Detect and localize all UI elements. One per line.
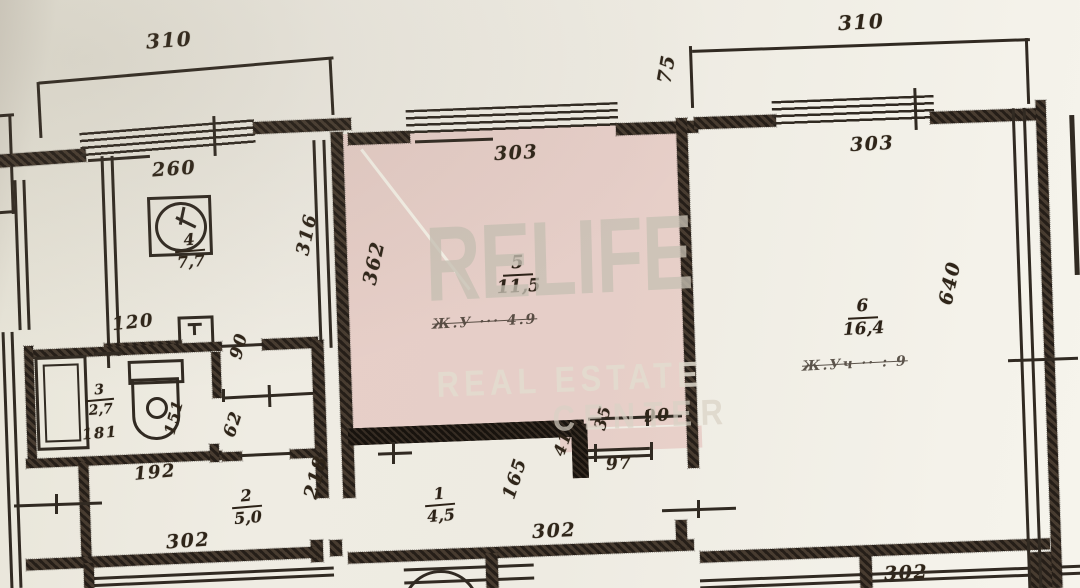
bath-shelf-stem — [107, 354, 110, 368]
lower-row-stub-left — [84, 563, 95, 588]
dim-niche-width: 97 — [605, 453, 633, 475]
entry-label: 1 4,5 — [404, 481, 475, 527]
hallway-door-sill — [238, 452, 294, 457]
hallway-left-wall — [78, 462, 91, 562]
bathroom-right-wall-upper — [211, 352, 222, 398]
hallway-number: 2 — [231, 487, 262, 509]
balcony-right-top-wall — [692, 38, 1030, 53]
balcony-left-right-wall — [328, 57, 334, 115]
right-edge-partial-wall — [1069, 115, 1080, 275]
kitchen-label: 4 7,7 — [156, 227, 223, 273]
floor-plan-scan: 310 310 75 4 7,7 260 316 120 90 — [0, 0, 1080, 588]
corridor-dim-tick — [268, 385, 272, 407]
dim-corridor: 62 — [220, 408, 247, 440]
entry-dim-cross-h — [378, 451, 412, 455]
bedroom-label: 6 16,4 — [827, 294, 899, 340]
dim-entry-depth: 165 — [499, 455, 532, 502]
balcony-left-left-wall — [37, 82, 43, 138]
entry-area: 4,5 — [406, 503, 475, 528]
neighbour-balcony-top — [0, 113, 14, 118]
niche-tick-b — [650, 442, 653, 460]
bedroom-bottom-wall — [700, 538, 1050, 562]
dim-kitchen-door: 90 — [226, 331, 252, 362]
entry-number: 1 — [424, 485, 455, 507]
kitchen-bottom-wall-right — [262, 337, 318, 350]
dim-bath-width: 181 — [81, 422, 118, 443]
dim-living-window: 303 — [493, 141, 538, 165]
hallway-door-dim-tick — [55, 494, 58, 514]
kitchen-area: 7,7 — [158, 249, 223, 273]
bathroom-number: 3 — [85, 382, 114, 402]
facade-wall-bedroom-left — [694, 115, 776, 130]
lower-row-stub-right — [859, 556, 872, 588]
dim-entry-bottom: 302 — [531, 519, 576, 543]
bedroom-area: 16,4 — [828, 317, 899, 340]
bedroom-window — [772, 95, 935, 126]
bathroom-right-wall-lower — [210, 444, 220, 462]
left-facade-window — [13, 180, 30, 330]
lower-row-stub-mid — [485, 553, 498, 588]
dim-balcony-right-width: 310 — [837, 9, 884, 35]
niche-tick-a — [594, 444, 597, 462]
entry-dim-cross-v — [392, 442, 395, 464]
balcony-left-top-wall — [38, 56, 333, 84]
bedroom-struck-note: Ж.Уч ·· : 9 — [802, 353, 909, 375]
kitchen-window — [79, 119, 255, 157]
hallway-label: 2 5,0 — [212, 483, 281, 529]
balcony-right-left-wall — [689, 46, 694, 108]
hallway-area: 5,0 — [214, 505, 281, 529]
left-exterior-wall — [2, 332, 23, 588]
living-left-wall-lower — [330, 540, 343, 556]
corridor-dim-line — [222, 391, 322, 399]
kitchen-number: 4 — [174, 231, 205, 253]
kitchen-window-sill — [88, 155, 150, 162]
watermark-relife: RELIFE — [424, 205, 696, 355]
dim-kitchen-window: 260 — [151, 156, 197, 181]
balcony-right-right-wall — [1025, 38, 1030, 104]
bedroom-door-dim-tick — [697, 500, 700, 518]
corridor-dim-end-left — [222, 389, 225, 402]
dim-bedroom-wall: 640 — [935, 259, 966, 307]
bathroom-bottom-wall — [26, 451, 222, 469]
dim-balcony-right-depth: 75 — [653, 53, 680, 86]
lower-row-wall-left — [84, 567, 334, 588]
entry-bottom-wall — [348, 539, 694, 563]
watermark-center: CENTER — [552, 391, 732, 440]
dim-balcony-left-width: 310 — [145, 26, 193, 53]
bathroom-area: 2,7 — [76, 399, 125, 420]
dim-hallway-bottom: 302 — [165, 528, 211, 553]
bedroom-number: 6 — [847, 297, 878, 319]
neighbour-balcony-bottom — [0, 210, 12, 214]
bedroom-left-wall-lower — [676, 520, 688, 548]
dim-bath-outer: 192 — [133, 460, 177, 485]
facade-wall-kitchen-left — [0, 149, 86, 169]
dim-kitchen-door-offset: 120 — [111, 310, 155, 335]
bathroom-label: 3 2,7 — [75, 380, 126, 419]
right-wall-tick — [1008, 357, 1078, 362]
dim-bedroom-window: 303 — [849, 132, 894, 156]
facade-wall-living-left — [348, 131, 410, 145]
